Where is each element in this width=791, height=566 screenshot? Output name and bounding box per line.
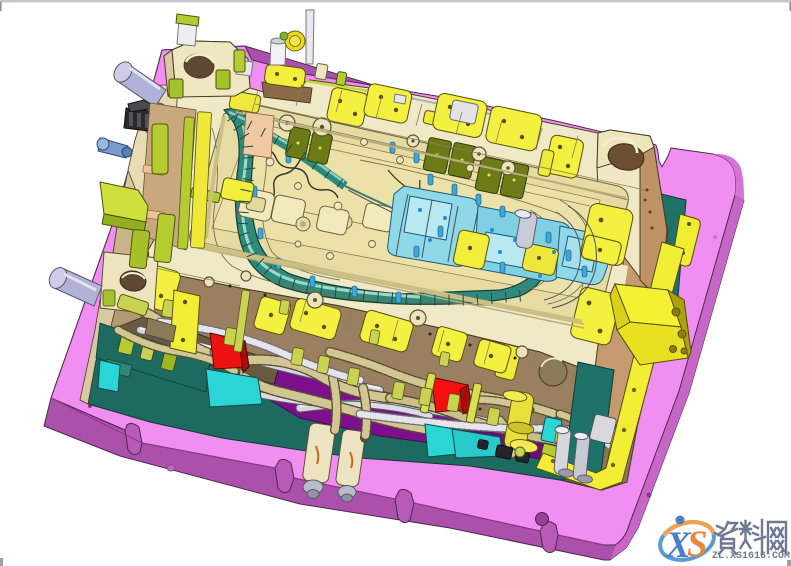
svg-text:ZL.XS1616.COM: ZL.XS1616.COM (712, 551, 790, 562)
svg-text:S: S (687, 524, 708, 565)
